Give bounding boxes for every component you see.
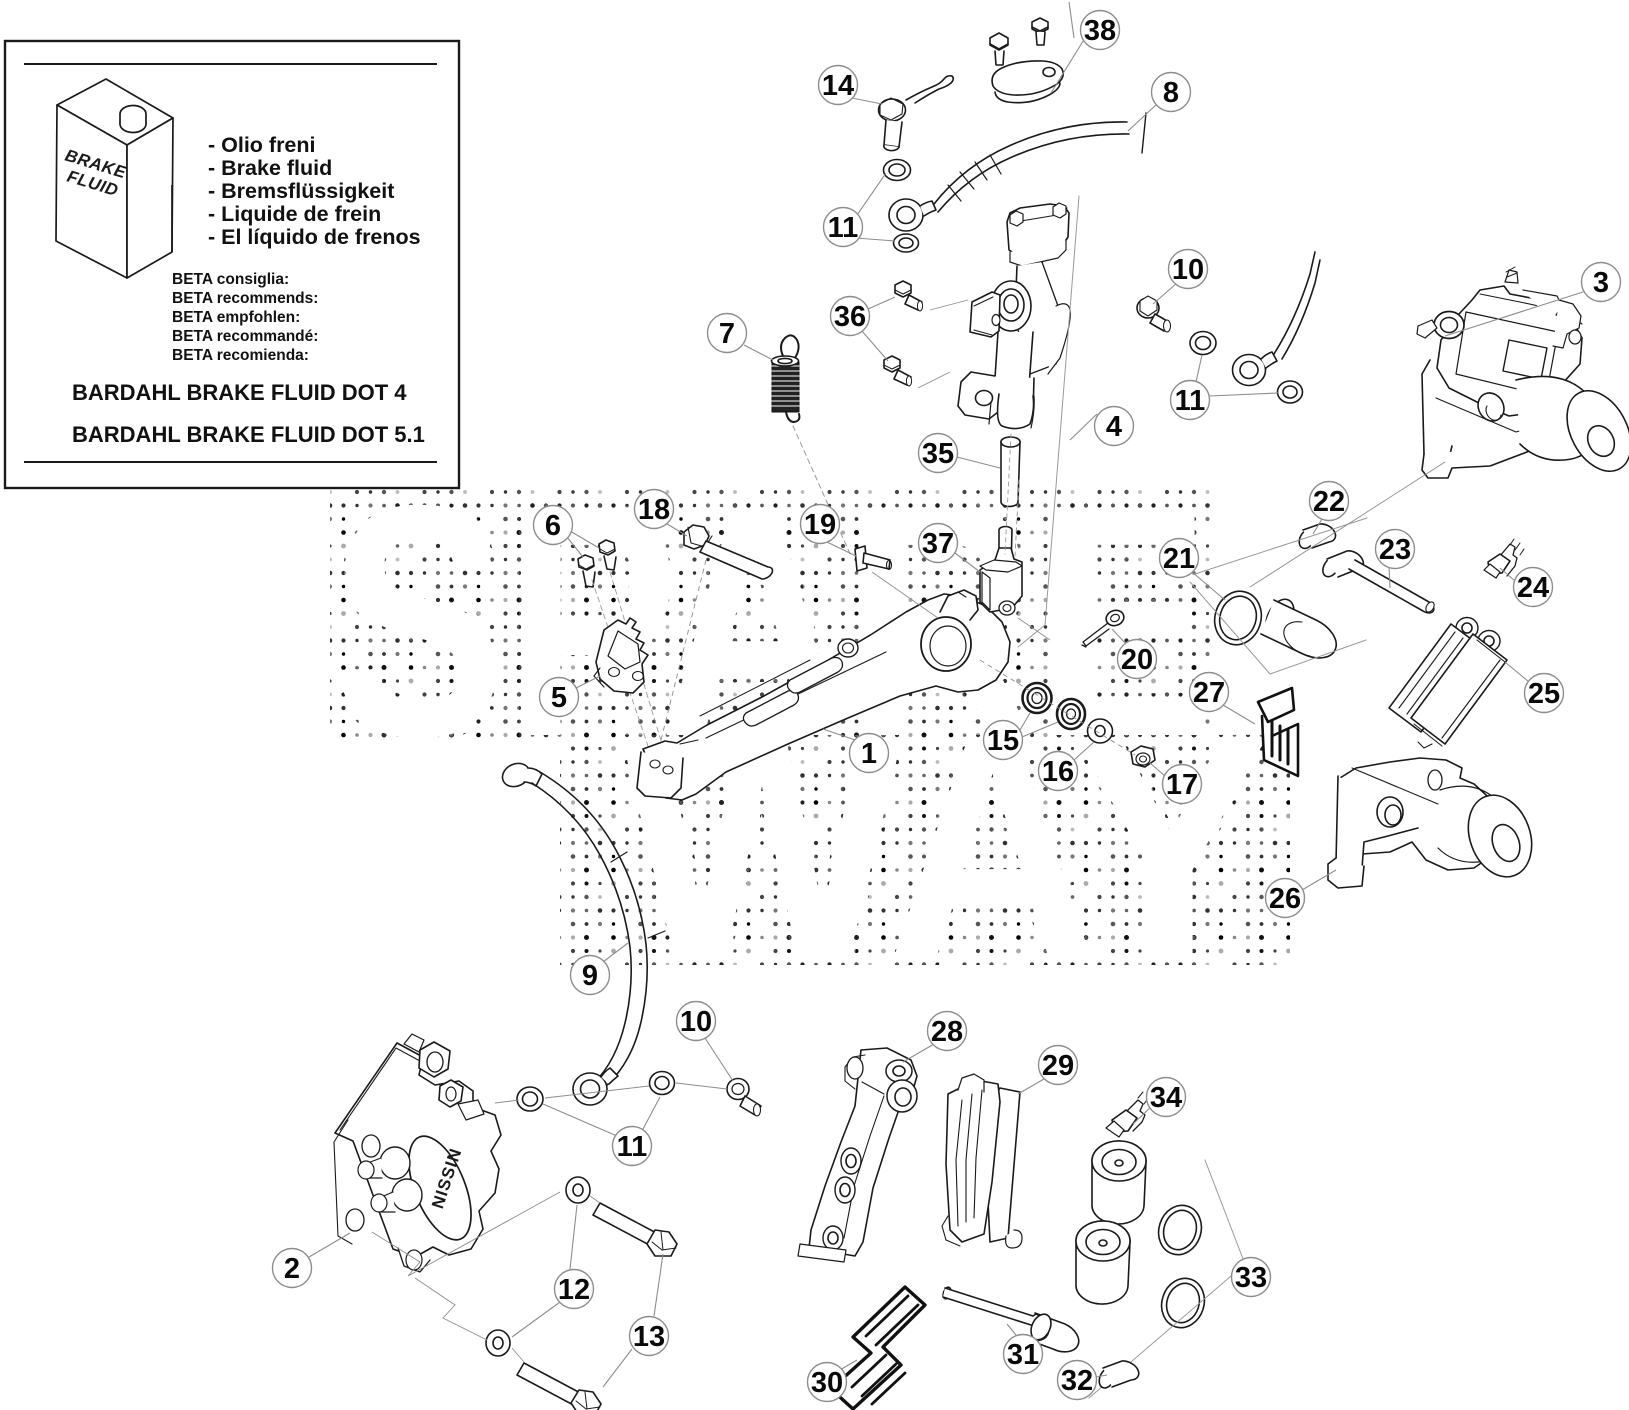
svg-text:BARDAHL BRAKE FLUID DOT 5.1: BARDAHL BRAKE FLUID DOT 5.1 (72, 422, 425, 447)
svg-text:BETA recommends:: BETA recommends: (172, 290, 318, 307)
svg-text:BETA empfohlen:: BETA empfohlen: (172, 309, 300, 326)
svg-text:15: 15 (987, 725, 1019, 757)
svg-text:27: 27 (1193, 677, 1225, 709)
svg-text:10: 10 (680, 1006, 712, 1038)
svg-text:3: 3 (1593, 267, 1609, 299)
svg-text:18: 18 (638, 494, 670, 526)
svg-text:14: 14 (822, 70, 854, 102)
svg-text:19: 19 (804, 509, 836, 541)
svg-text:21: 21 (1163, 543, 1195, 575)
svg-text:6: 6 (545, 510, 561, 542)
svg-text:1: 1 (861, 738, 877, 770)
svg-text:13: 13 (633, 1321, 665, 1353)
svg-text:- Liquide de frein: - Liquide de frein (208, 202, 381, 226)
svg-text:26: 26 (1269, 883, 1301, 915)
svg-text:BETA consiglia:: BETA consiglia: (172, 271, 289, 288)
svg-text:2: 2 (284, 1253, 300, 1285)
svg-text:17: 17 (1166, 769, 1198, 801)
svg-text:7: 7 (719, 318, 735, 350)
svg-text:32: 32 (1061, 1365, 1093, 1397)
svg-text:35: 35 (922, 438, 954, 470)
svg-text:22: 22 (1313, 486, 1345, 518)
svg-text:11: 11 (1175, 385, 1206, 417)
svg-text:BARDAHL BRAKE FLUID DOT 4: BARDAHL BRAKE FLUID DOT 4 (72, 380, 407, 405)
svg-text:31: 31 (1007, 1339, 1039, 1371)
svg-text:- El líquido de frenos: - El líquido de frenos (208, 225, 421, 249)
svg-text:- Bremsflüssigkeit: - Bremsflüssigkeit (208, 179, 394, 203)
svg-text:24: 24 (1517, 572, 1549, 604)
svg-text:5: 5 (551, 682, 567, 714)
svg-text:8: 8 (1163, 77, 1179, 109)
svg-text:- Brake fluid: - Brake fluid (208, 156, 332, 180)
svg-text:11: 11 (828, 212, 859, 244)
svg-text:11: 11 (617, 1131, 648, 1163)
svg-text:30: 30 (811, 1367, 843, 1399)
svg-text:34: 34 (1150, 1082, 1182, 1114)
svg-text:- Olio freni: - Olio freni (208, 133, 316, 157)
svg-text:37: 37 (922, 528, 954, 560)
svg-text:12: 12 (558, 1274, 590, 1306)
svg-text:36: 36 (834, 301, 866, 333)
svg-text:28: 28 (931, 1016, 963, 1048)
svg-text:4: 4 (1106, 411, 1122, 443)
svg-text:10: 10 (1172, 254, 1204, 286)
svg-text:33: 33 (1235, 1262, 1267, 1294)
svg-text:20: 20 (1121, 644, 1153, 676)
svg-text:16: 16 (1042, 756, 1074, 788)
svg-text:BETA recommandé:: BETA recommandé: (172, 328, 318, 345)
svg-text:29: 29 (1042, 1050, 1074, 1082)
svg-text:9: 9 (582, 960, 598, 992)
svg-text:25: 25 (1528, 678, 1560, 710)
svg-text:23: 23 (1379, 534, 1411, 566)
svg-text:38: 38 (1084, 15, 1116, 47)
svg-text:BETA recomienda:: BETA recomienda: (172, 347, 309, 364)
